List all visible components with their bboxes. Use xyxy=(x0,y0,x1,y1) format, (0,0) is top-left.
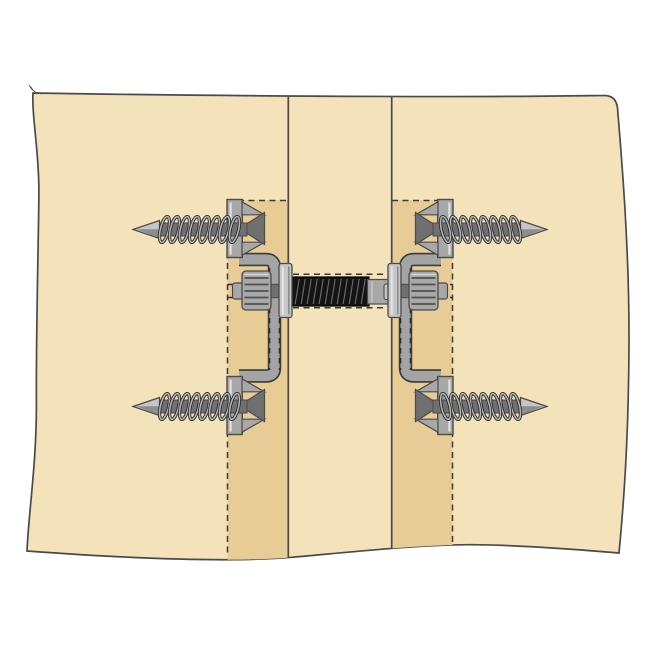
diagram-canvas xyxy=(0,0,650,650)
washer-plate-right xyxy=(388,264,401,318)
washer-plate-left xyxy=(279,264,292,318)
hex-nut-right xyxy=(409,271,438,310)
wood-panel xyxy=(27,93,629,560)
hex-nut-left xyxy=(242,271,271,310)
panel-connector-diagram xyxy=(0,0,650,650)
